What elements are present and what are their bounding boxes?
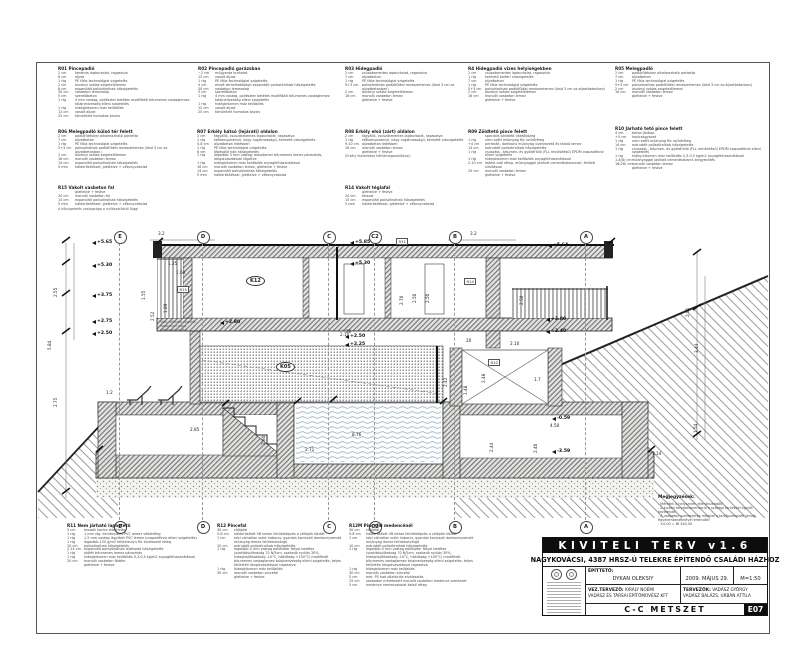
- pool-hall: [190, 331, 443, 404]
- roof-slab: [157, 245, 612, 258]
- basement-wall-mid: [277, 402, 294, 478]
- client-cell: ÉPÍTTETŐ: DYKAN OLEKSIY: [586, 567, 681, 584]
- ext-wall-right: [486, 258, 500, 318]
- project-title: NAGYKOVÁCSI, 4387 HRSZ-Ú TELEKRE ÉPÍTEND…: [543, 553, 767, 567]
- firm-name: VADÁSZ ÉS TÁRSAI ÉPÍTŐMŰVÉSZ KFT: [588, 593, 678, 598]
- architect-stamps: [543, 567, 586, 615]
- sheet: { "title_block": { "banner": "KIVITELI T…: [0, 0, 800, 666]
- basement-wall-left: [98, 402, 116, 478]
- lightwell: [450, 348, 562, 406]
- client-label: ÉPÍTTETŐ:: [588, 569, 613, 574]
- partition-wall: [385, 258, 391, 318]
- door: [344, 264, 364, 314]
- pool-wall-right: [443, 402, 460, 478]
- lead-designer-label: VEZ.TERVEZŐ:: [588, 588, 624, 593]
- hall-wall-left: [190, 331, 200, 404]
- lead-designer-name: KIRÁLY NOÉMI: [625, 587, 654, 592]
- upper-floor: [153, 241, 614, 348]
- basement-room-left: [116, 415, 223, 455]
- note-line: - A vasbeton szerkezetek méretei a tartó…: [658, 514, 768, 522]
- ext-wall-left: [183, 258, 192, 318]
- lead-designer-cell: VEZ.TERVEZŐ: KIRÁLY NOÉMI VADÁSZ ÉS TÁRS…: [586, 585, 681, 603]
- title-block: KIVITELI TERV v1.6 NAGYKOVÁCSI, 4387 HRS…: [542, 537, 768, 616]
- basement-wall-right: [622, 402, 648, 478]
- drawing-title: C-C METSZET: [586, 605, 744, 614]
- pool-water: [296, 406, 441, 462]
- terrace-railing-right: [512, 288, 608, 318]
- designers-label: TERVEZŐK:: [683, 588, 711, 593]
- stamp-icon: [566, 569, 577, 580]
- designer-name-1: VADÁSZ GYÖRGY: [712, 587, 748, 592]
- gravel-bed: [96, 476, 654, 498]
- balcony-railing-left: [157, 258, 183, 318]
- wall-stub: [486, 331, 500, 348]
- sheet-code: E07: [744, 604, 767, 615]
- plan-date: 2009. MÁJUS 29.: [685, 576, 728, 582]
- plan-scale: M=1:50: [740, 576, 760, 582]
- notes-block: Megjegyzések: - Méretek a helyszínen ell…: [658, 496, 768, 526]
- note-line: - A kiviteli tervdokumentáció a szakági …: [658, 506, 768, 514]
- date-cell: 2009. MÁJUS 29.: [681, 567, 734, 584]
- designers-cell: TERVEZŐK: VADÁSZ GYÖRGY VADÁSZ BALÁZS, U…: [681, 585, 767, 603]
- scale-cell: M=1:50: [734, 567, 767, 584]
- pool-deck: [200, 346, 443, 403]
- notes-heading: Megjegyzések:: [658, 496, 768, 500]
- stamp-fine-print: [547, 582, 581, 614]
- floor-slab: [157, 318, 612, 331]
- plan-version-banner: KIVITELI TERV v1.6: [543, 538, 767, 553]
- client-name: DYKAN OLEKSIY: [613, 576, 654, 582]
- designer-name-2: VADÁSZ BALÁZS, URBÁN ATTILA: [683, 593, 765, 598]
- stamp-icon: [551, 569, 562, 580]
- door: [425, 264, 444, 314]
- partition-wall: [303, 258, 309, 318]
- note-line: - ±0,00 = Bf 340,00: [658, 522, 768, 526]
- basement-room-right: [460, 415, 622, 458]
